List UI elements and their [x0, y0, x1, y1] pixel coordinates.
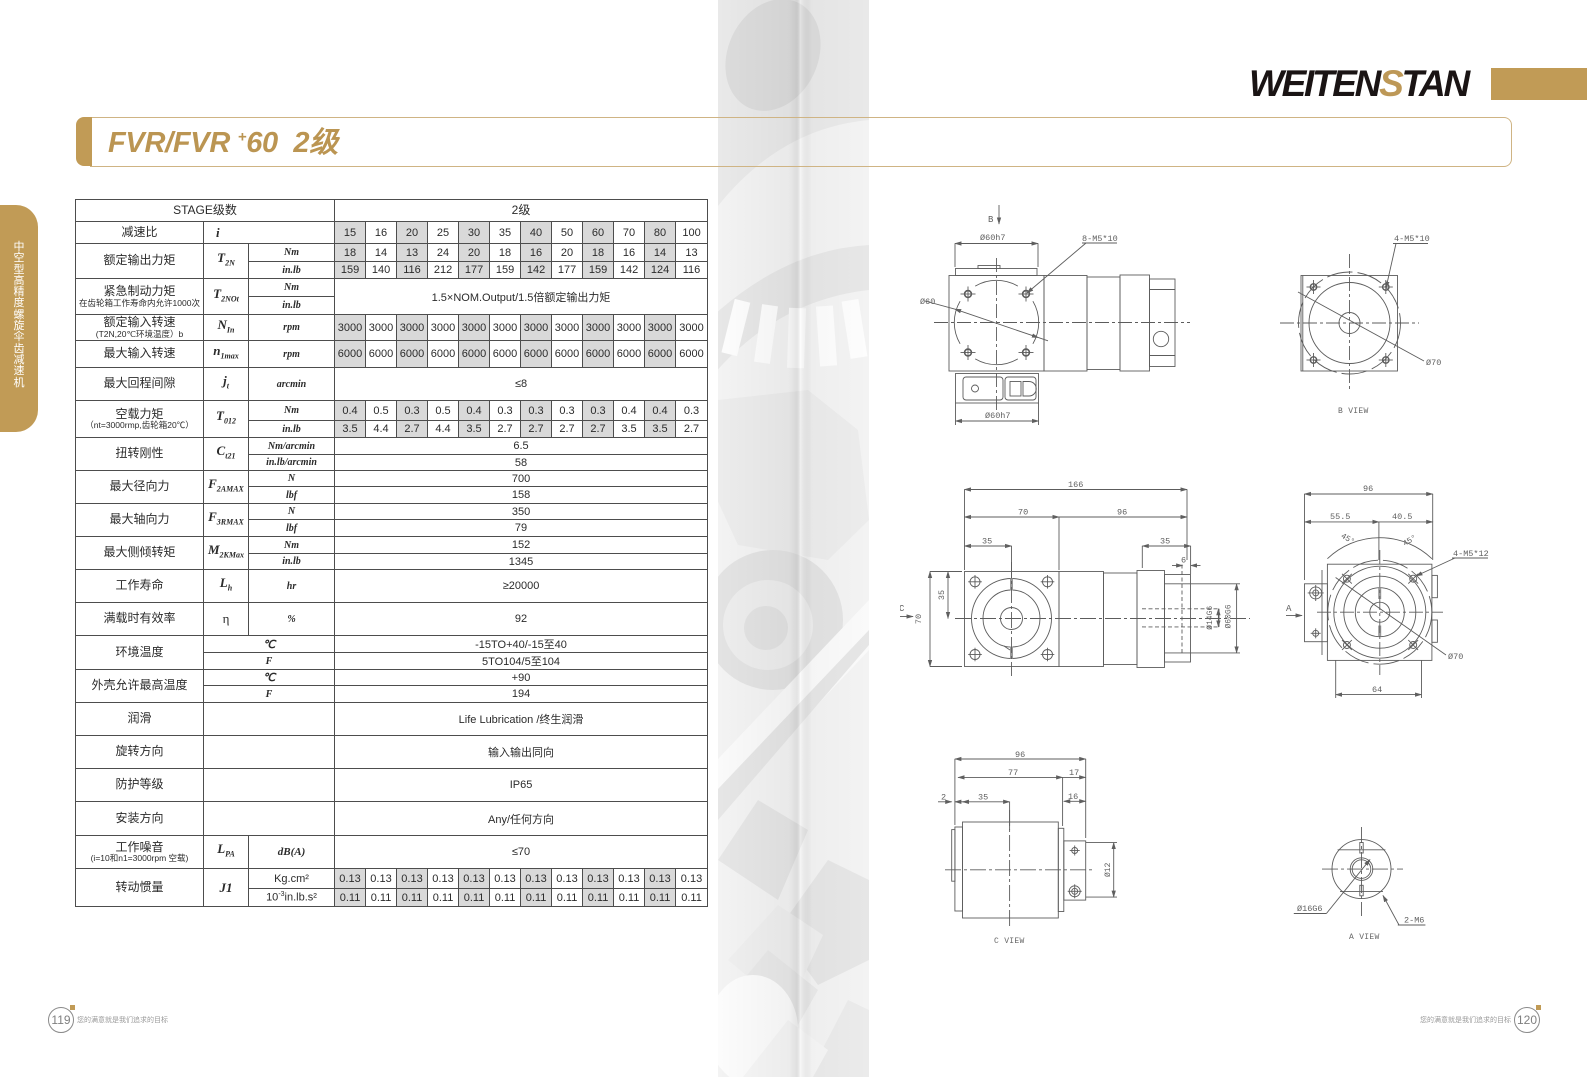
svg-text:C VIEW: C VIEW: [994, 937, 1025, 946]
svg-text:35: 35: [982, 537, 992, 547]
svg-text:96: 96: [1117, 508, 1127, 518]
svg-text:70: 70: [1018, 508, 1028, 518]
svg-text:2: 2: [941, 793, 946, 803]
svg-text:Ø12: Ø12: [1104, 862, 1113, 877]
svg-text:B: B: [988, 215, 994, 225]
svg-text:35: 35: [978, 793, 988, 803]
svg-text:55.5: 55.5: [1330, 512, 1350, 522]
svg-text:Ø14G6: Ø14G6: [1206, 606, 1215, 630]
svg-text:64: 64: [1372, 685, 1382, 695]
svg-text:Ø60G6: Ø60G6: [1225, 604, 1234, 628]
svg-text:35: 35: [937, 590, 947, 600]
svg-text:Ø16G6: Ø16G6: [1297, 904, 1323, 914]
svg-text:35: 35: [1160, 537, 1170, 547]
svg-text:17: 17: [1069, 768, 1079, 778]
svg-text:6: 6: [1181, 556, 1186, 566]
svg-text:Ø70: Ø70: [1448, 652, 1463, 662]
svg-text:A: A: [1286, 604, 1292, 614]
svg-text:Ø70: Ø70: [1426, 358, 1441, 368]
svg-text:4-M5*10: 4-M5*10: [1394, 234, 1430, 244]
svg-text:4-M5*12: 4-M5*12: [1453, 549, 1489, 559]
svg-text:2-M6: 2-M6: [1404, 916, 1424, 926]
svg-text:166: 166: [1068, 480, 1083, 490]
svg-text:77: 77: [1008, 768, 1018, 778]
svg-text:A VIEW: A VIEW: [1349, 933, 1380, 942]
svg-text:96: 96: [1015, 750, 1025, 760]
svg-text:C: C: [900, 604, 905, 614]
svg-text:B VIEW: B VIEW: [1338, 407, 1369, 416]
svg-text:16: 16: [1068, 792, 1078, 802]
svg-text:Ø60h7: Ø60h7: [980, 233, 1006, 243]
svg-text:40.5: 40.5: [1392, 512, 1412, 522]
svg-text:Ø60h7: Ø60h7: [985, 411, 1011, 421]
svg-text:8-M5*10: 8-M5*10: [1082, 234, 1118, 244]
svg-text:96: 96: [1363, 484, 1373, 494]
svg-text:70: 70: [914, 614, 924, 624]
